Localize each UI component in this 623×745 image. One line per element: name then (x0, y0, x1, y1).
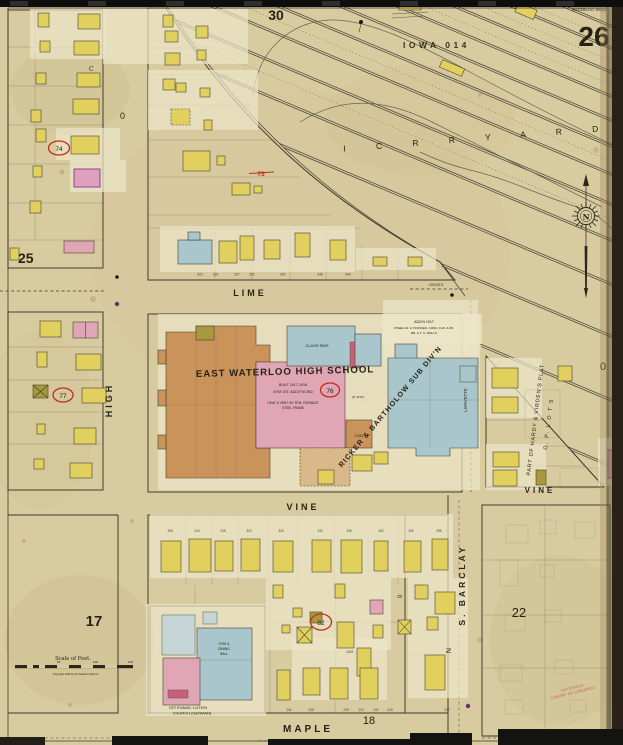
compass-north-letter: N (583, 213, 590, 222)
building-footprint (196, 326, 214, 340)
house-number: 350 (408, 529, 414, 533)
building-footprint (30, 201, 41, 213)
house-number: 231 (372, 708, 379, 712)
scale-tick-50: 50 (57, 660, 61, 664)
house-number: 235 (342, 708, 349, 712)
building-footprint (165, 31, 178, 42)
building-footprint (203, 612, 217, 624)
church-hall-label-2: DINING (218, 647, 230, 651)
ref-77: 77 (59, 393, 67, 400)
street-label-barclay: S. BARCLAY (457, 544, 467, 625)
stable-building (398, 620, 411, 634)
house-number: 239 (307, 708, 314, 712)
water-main-note: (6" W.M.) (352, 395, 364, 399)
school-heat-label-1: HEAT & VENT. BY STM. FURNACE (267, 401, 318, 405)
house-number-1305: 1305 (346, 650, 353, 654)
house-number: 229 (386, 708, 393, 712)
adjacent-sheet-top: 30 (268, 7, 284, 23)
building-footprint (355, 334, 381, 366)
building-footprint (36, 129, 46, 142)
building-footprint (165, 53, 180, 65)
building-footprint (183, 151, 210, 171)
building-footprint (38, 13, 49, 27)
building-footprint (374, 541, 388, 571)
building-footprint (204, 120, 212, 130)
building-footprint (64, 241, 94, 253)
house-number: 839 (317, 273, 323, 277)
building-footprint (295, 233, 310, 257)
block-number-22: 22 (512, 605, 526, 620)
building-footprint (158, 350, 166, 364)
building-footprint (215, 541, 233, 571)
building-footprint (74, 428, 96, 444)
house-number: 233 (357, 708, 364, 712)
building-footprint (536, 470, 546, 485)
building-footprint (330, 668, 348, 699)
building-footprint (241, 539, 260, 571)
school-built-label: BUILT 1917-1918 (279, 383, 307, 387)
building-footprint (303, 668, 320, 695)
building-footprint (37, 352, 47, 367)
building-footprint (158, 435, 166, 449)
block-number-18: 18 (363, 715, 375, 727)
building-footprint (341, 540, 362, 573)
building-footprint (273, 541, 293, 572)
zero-mark-high: 0 (120, 111, 125, 121)
house-number: 306 (167, 529, 173, 533)
building-footprint (404, 541, 421, 572)
building-footprint (293, 608, 302, 617)
house-number: 833 (280, 273, 286, 277)
house-number: 241 (285, 708, 292, 712)
house-number: 821 (213, 273, 219, 277)
building-footprint (78, 14, 100, 29)
building-footprint (427, 617, 438, 630)
catalog-stamp: IOWA 014 (403, 40, 470, 50)
ref-82: 82 (317, 620, 325, 627)
street-label-lafayette: LAFAYETTE (463, 388, 468, 412)
crossing-note: CROSS'G (429, 283, 444, 287)
building-footprint (352, 455, 372, 471)
house-number: 318 (220, 529, 226, 533)
building-footprint (408, 257, 422, 266)
church-name-label-1: 1ST EVANG. LUTH'N (169, 705, 208, 710)
scale-tick-150: 150 (128, 660, 133, 664)
ref-74: 74 (55, 146, 63, 153)
house-number: 322 (246, 529, 252, 533)
building-footprint (373, 625, 383, 638)
signal-dot (359, 20, 363, 24)
building-footprint (264, 240, 280, 259)
building-footprint (168, 690, 188, 698)
building-footprint (273, 585, 283, 598)
building-footprint (162, 615, 195, 655)
school-addition-note-3: BR. & T. C. WALLS (411, 331, 437, 335)
building-footprint (34, 459, 44, 469)
building-footprint (558, 366, 572, 381)
house-number: 314 (194, 529, 200, 533)
building-footprint (493, 452, 519, 467)
building-footprint (219, 241, 237, 263)
school-addition-note-2: STEEL FR. & TRUSSES, CONC. FLR. & RF. (394, 326, 454, 330)
building-footprint (360, 668, 378, 699)
building-footprint (70, 463, 92, 478)
adjacent-sheet-left: 25 (18, 250, 34, 266)
building-footprint (335, 584, 345, 598)
street-label-vine: VINE (286, 502, 319, 512)
scale-tick-100: 100 (93, 660, 98, 664)
building-footprint (196, 26, 208, 38)
school-main-building (166, 326, 270, 478)
building-footprint (40, 321, 61, 337)
building-footprint (74, 169, 100, 187)
building-footprint (492, 397, 518, 413)
building-footprint (71, 136, 99, 154)
school-addition-note-1: ADD'N 1917 (414, 320, 434, 324)
building-footprint (337, 622, 354, 648)
building-footprint (161, 541, 181, 572)
church-gym-dining-hall (197, 628, 252, 700)
house-number: 823 (197, 273, 203, 277)
street-label-high: HIGH (104, 383, 114, 418)
building-footprint (217, 156, 225, 165)
building-footprint (492, 368, 518, 388)
building-footprint (31, 110, 41, 122)
building-footprint (232, 183, 250, 195)
building-footprint (240, 236, 254, 260)
building-footprint (415, 585, 428, 599)
building-footprint (197, 50, 206, 60)
house-number: 336 (346, 529, 352, 533)
house-number: 342 (378, 529, 384, 533)
building-footprint (277, 670, 290, 700)
school-heat-label-2: STEEL FRAME (282, 406, 304, 410)
scale-title: Scale of Feet. (55, 656, 91, 662)
church-hall-label-3: HALL (220, 652, 229, 656)
house-number: 356 (436, 529, 442, 533)
building-footprint (73, 99, 99, 114)
building-footprint (254, 186, 262, 193)
building-footprint (435, 592, 455, 614)
building-footprint (77, 73, 100, 87)
house-number: 326 (278, 529, 284, 533)
building-footprint (312, 540, 331, 572)
building-footprint (188, 232, 200, 240)
ref-75: 75 (257, 171, 265, 178)
block-number-17: 17 (86, 613, 103, 630)
building-footprint (493, 470, 517, 486)
scale-copyright: Copyright 1919 by the Sanborn Map Co. (53, 672, 100, 676)
building-footprint (370, 600, 383, 614)
school-classrooms-label: CLASS RMS (305, 343, 328, 348)
building-footprint (282, 625, 290, 633)
building-footprint (330, 240, 346, 260)
street-label-vine-east: VINE (525, 486, 556, 495)
house-number: 827 (234, 273, 240, 277)
house-number: 227 (443, 708, 450, 712)
building-footprint (82, 388, 106, 403)
c-mark: C (89, 66, 94, 73)
ref-76: 76 (326, 388, 334, 395)
building-footprint (74, 41, 99, 55)
stable-building (33, 385, 48, 398)
building-footprint (171, 109, 190, 125)
building-footprint (163, 79, 175, 90)
building-footprint (37, 424, 45, 434)
building-footprint (373, 257, 387, 266)
building-footprint (318, 470, 334, 484)
building-footprint (425, 655, 445, 690)
building-footprint (189, 539, 211, 572)
building-footprint (163, 15, 173, 27)
house-number: 831 (249, 273, 255, 277)
house-number: 843 (345, 273, 351, 277)
street-label-maple: MAPLE (283, 724, 333, 735)
house-number: 332 (317, 529, 323, 533)
building-footprint (40, 41, 50, 52)
building-footprint (76, 354, 101, 370)
sanborn-map-sheet: I C R R Y A R D (0, 0, 623, 745)
building-footprint (178, 240, 212, 264)
map-canvas: I C R R Y A R D (0, 0, 623, 745)
church-hall-label-1: GYM & (219, 642, 231, 646)
building-footprint (158, 390, 166, 406)
church-name-label-2: CHURCH (GERMAN) (173, 711, 212, 716)
building-footprint (200, 88, 210, 97)
building-footprint (33, 166, 42, 177)
street-label-lime: LIME (233, 288, 267, 298)
building-footprint (176, 83, 186, 92)
n-mark: N (444, 648, 451, 653)
building-footprint (432, 539, 448, 570)
building-footprint (36, 73, 46, 84)
building-footprint (374, 452, 388, 464)
stable-building (297, 627, 312, 643)
school-gym-label: GYM 1ST, AUDIT'M 2ND (273, 390, 313, 394)
